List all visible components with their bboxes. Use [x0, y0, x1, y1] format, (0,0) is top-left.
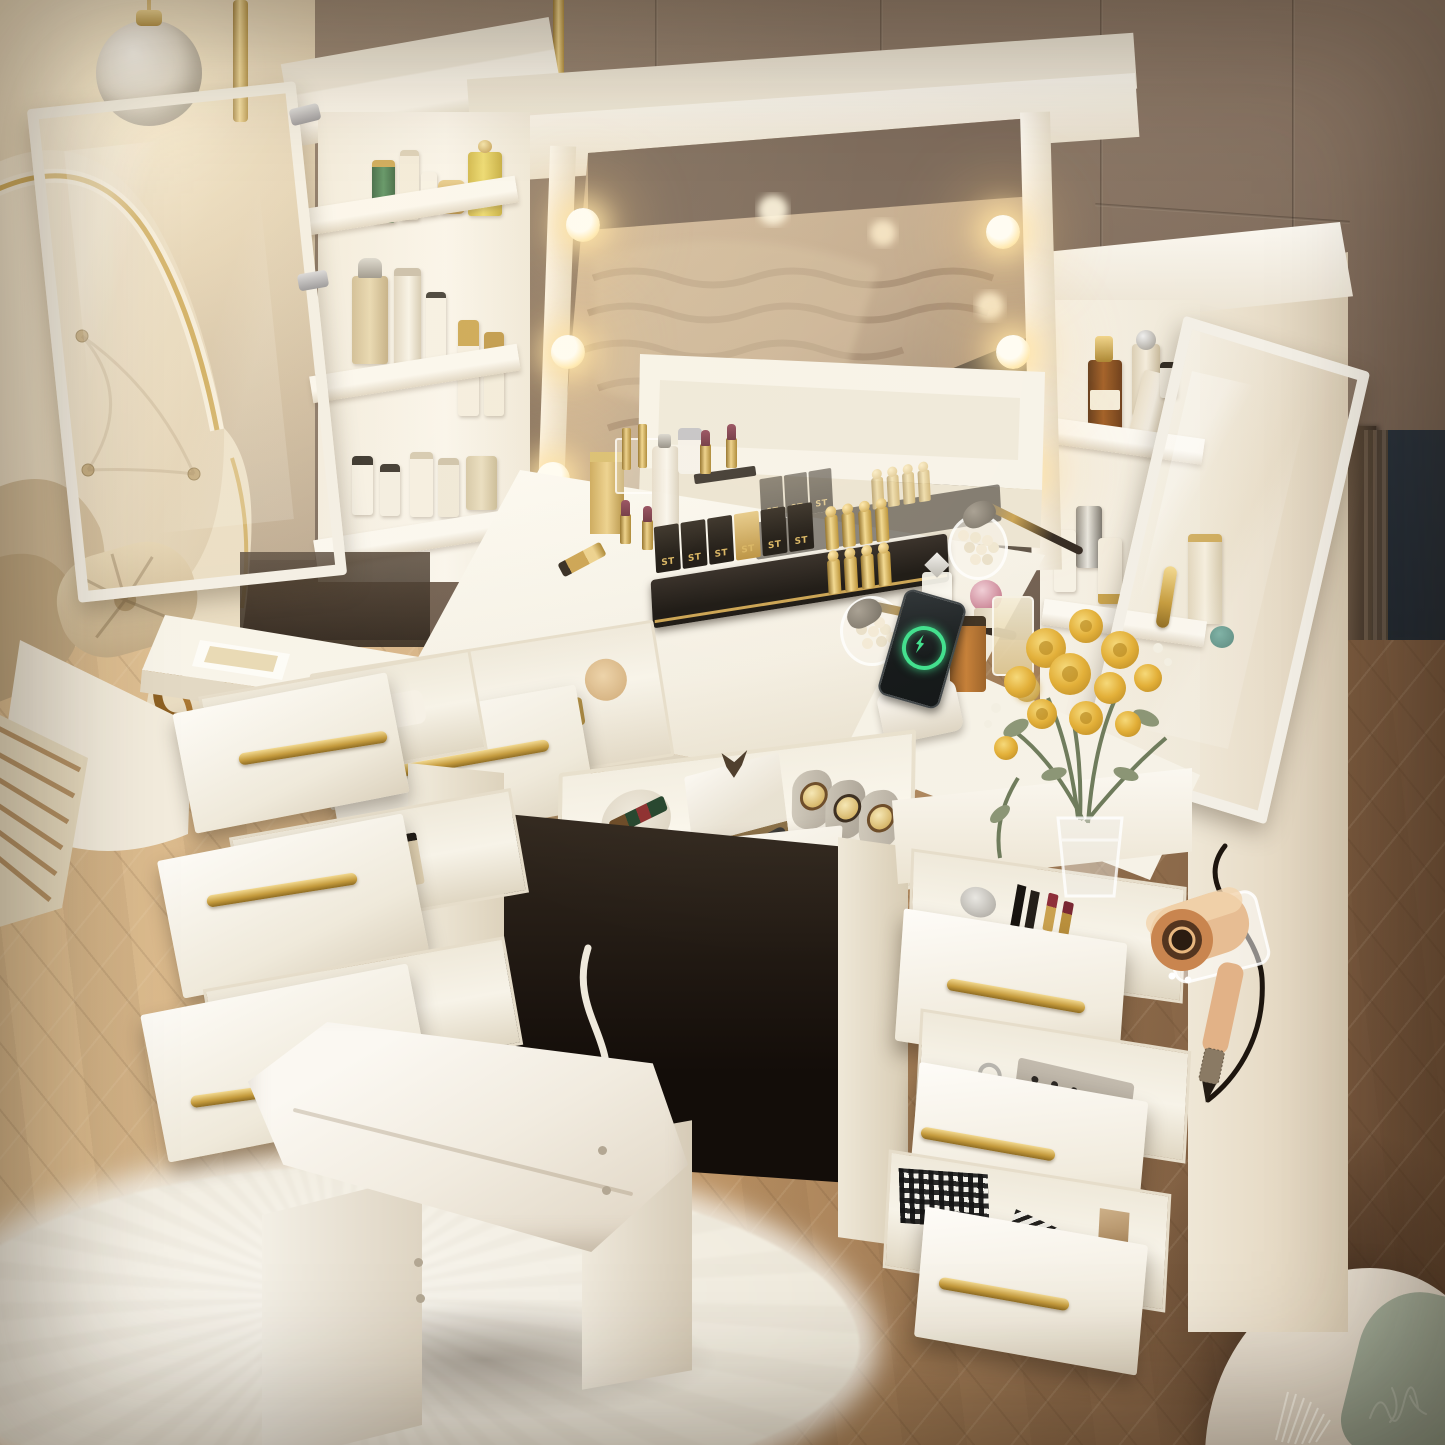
stool-screw [414, 1258, 423, 1267]
hair-dryer [1130, 828, 1320, 1128]
pearls [958, 530, 969, 541]
st-box: ST [787, 502, 814, 552]
st-box: ST [654, 523, 681, 573]
plum-lipstick [726, 438, 737, 468]
artist-signature [1366, 1376, 1438, 1432]
powder-compact [582, 656, 630, 704]
led-bulb [986, 215, 1020, 249]
st-box: ST [707, 515, 734, 565]
pump-nozzle [658, 434, 671, 448]
pendant-gold-cap [136, 10, 162, 26]
gold-lipstick-tube [638, 424, 647, 468]
fringe-tassel [1268, 1380, 1338, 1445]
silver-cap-bottle [678, 428, 702, 474]
plum-lipstick [620, 514, 631, 544]
perfume-silver-cap [358, 258, 382, 278]
stool-leg [262, 1175, 422, 1445]
led-bulb [566, 208, 600, 242]
gold-lipstick-tube [622, 428, 631, 470]
st-box: ST [760, 506, 787, 556]
plum-lipstick [700, 444, 711, 474]
atomizer-bulb [478, 140, 492, 153]
st-box: ST [680, 519, 707, 569]
gold-st-box: ST [734, 511, 761, 561]
bedroom-vanity-scene: STSTST STSTSTSTSTST [0, 0, 1445, 1445]
stool-screw [598, 1146, 607, 1155]
